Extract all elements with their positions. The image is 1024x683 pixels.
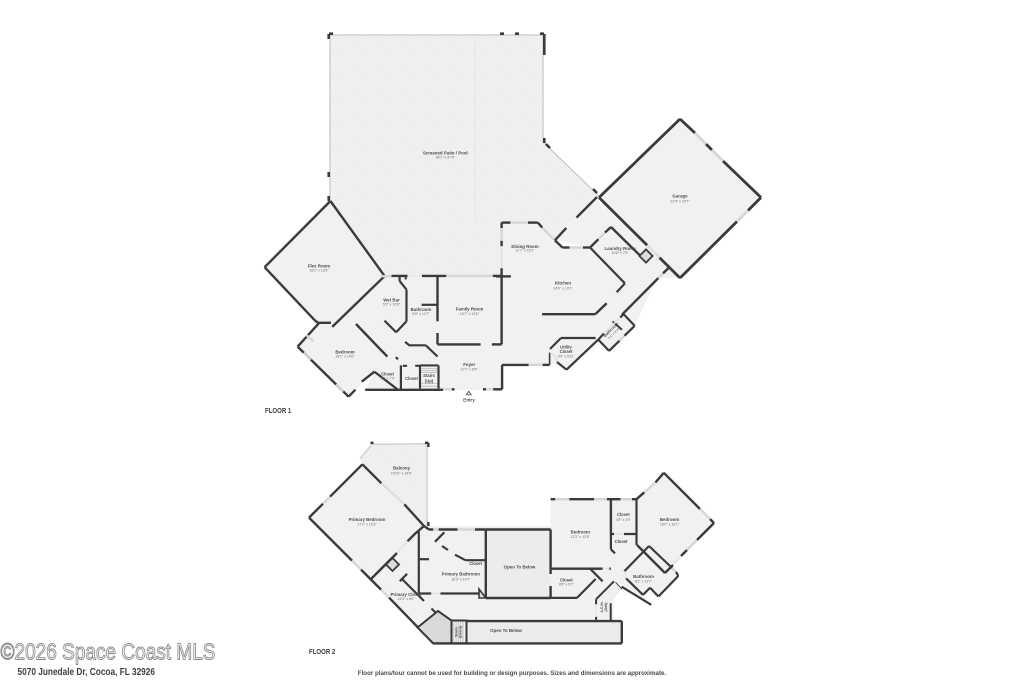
svg-text:Closet: Closet [615,539,628,544]
svg-text:(Down): (Down) [459,625,463,638]
svg-text:FLOOR 2: FLOOR 2 [309,647,335,656]
svg-text:12'2" x 13'5": 12'2" x 13'5" [571,535,591,539]
svg-text:Foyer: Foyer [463,362,475,367]
svg-text:Stairs: Stairs [423,373,435,378]
svg-text:4'4" x 5'11": 4'4" x 5'11" [558,354,575,358]
svg-text:Balcony: Balcony [393,466,411,471]
svg-text:Floor plans/tour cannot be use: Floor plans/tour cannot be used for buil… [358,670,667,677]
svg-text:(Unit): (Unit) [604,603,608,612]
svg-text:12'7" x 8'5": 12'7" x 8'5" [461,367,479,371]
svg-text:66'1" x 47'9": 66'1" x 47'9" [436,156,456,160]
svg-text:16'1" x 13'9": 16'1" x 13'9" [309,268,329,272]
svg-text:(Up): (Up) [425,379,434,384]
svg-text:15'7" x 13'6": 15'7" x 13'6" [460,312,480,316]
svg-text:Bedroom: Bedroom [571,529,590,534]
svg-text:Bedroom: Bedroom [660,517,679,522]
svg-text:Open To Below: Open To Below [504,564,536,569]
svg-text:©2026 Space Coast MLS: ©2026 Space Coast MLS [1,638,216,664]
svg-text:Primary Bathroom: Primary Bathroom [442,572,480,577]
svg-text:10'8" x 7'9": 10'8" x 7'9" [611,251,629,255]
svg-text:Closet: Closet [405,376,418,381]
svg-text:FLOOR 1: FLOOR 1 [265,406,291,415]
svg-text:Kitchen: Kitchen [555,281,571,286]
svg-text:8'9" x 12'7": 8'9" x 12'7" [412,312,430,316]
svg-text:22'9" x 23'7": 22'9" x 23'7" [670,199,690,203]
svg-text:4'9" x 4'9": 4'9" x 4'9" [616,518,632,522]
svg-text:24'9" x 13'1": 24'9" x 13'1" [553,286,573,290]
svg-text:14'3" x 5'0": 14'3" x 5'0" [397,597,415,601]
svg-text:15'10" x 14'5": 15'10" x 14'5" [391,472,413,476]
svg-text:5'2" x 10'8": 5'2" x 10'8" [383,302,401,306]
svg-text:5'4" x 7'0": 5'4" x 7'0" [380,377,396,381]
svg-text:5070 Junedale Dr, Cocoa, FL 32: 5070 Junedale Dr, Cocoa, FL 32926 [18,666,156,678]
svg-text:8'2" x 12'7": 8'2" x 12'7" [635,579,653,583]
svg-text:Closet: Closet [617,512,630,517]
svg-text:Garage: Garage [672,194,688,199]
svg-text:8'6" x 5'7": 8'6" x 5'7" [559,582,575,586]
svg-text:11'7" x 16'1": 11'7" x 16'1" [516,249,536,253]
svg-text:16'3" x 10'7": 16'3" x 10'7" [451,577,471,581]
svg-text:16'0" x 16'1": 16'0" x 16'1" [660,523,680,527]
svg-text:Primary Bedroom: Primary Bedroom [349,517,386,522]
svg-text:18'1" x 14'6": 18'1" x 14'6" [335,355,355,359]
svg-text:Open To Below: Open To Below [490,628,522,633]
svg-text:Family Room: Family Room [456,306,484,311]
svg-text:Bathroom: Bathroom [633,574,654,579]
svg-text:17'1" x 15'3": 17'1" x 15'3" [357,523,377,527]
svg-text:Entry: Entry [463,398,475,403]
svg-text:Closet: Closet [469,561,482,566]
